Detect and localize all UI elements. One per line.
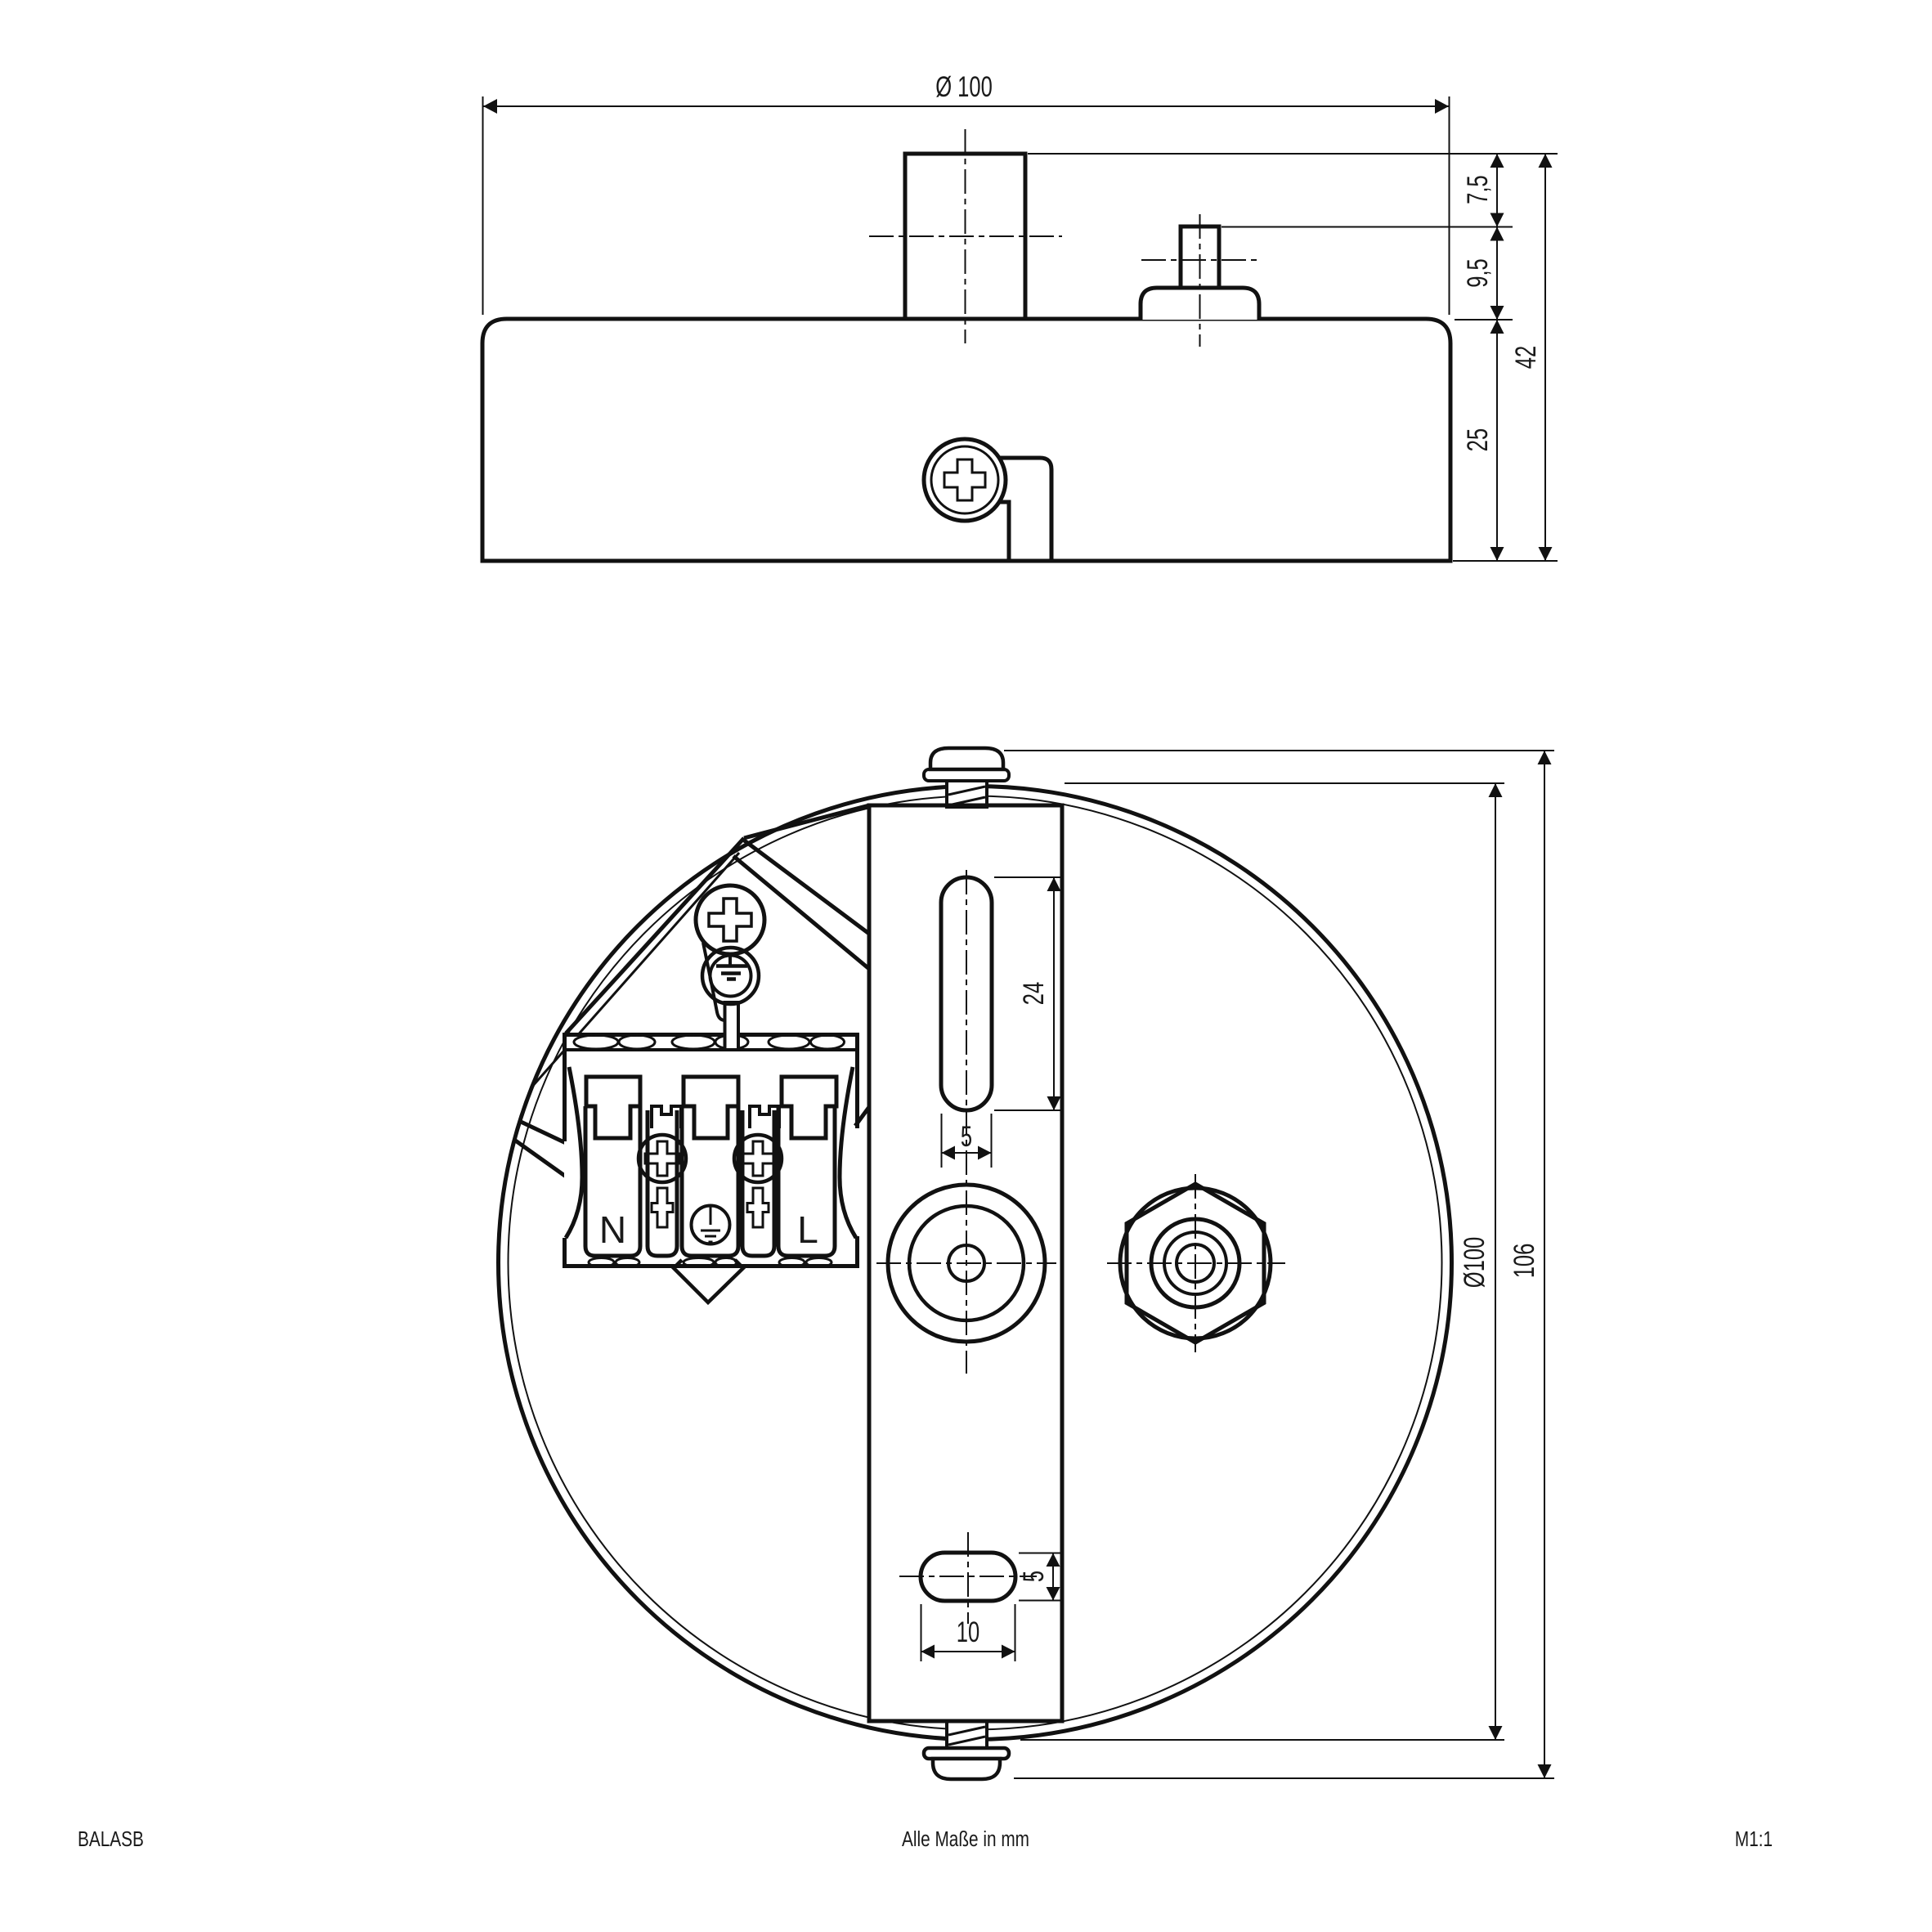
svg-text:9,5: 9,5 [1462,258,1494,288]
svg-text:Alle Maße in mm: Alle Maße in mm [902,1827,1029,1851]
svg-text:42: 42 [1510,346,1542,369]
svg-text:106: 106 [1508,1244,1540,1279]
svg-text:24: 24 [1018,982,1050,1005]
svg-text:5: 5 [1018,1571,1050,1582]
svg-text:N: N [599,1208,626,1251]
svg-text:25: 25 [1462,428,1494,451]
svg-text:L: L [797,1208,818,1251]
svg-text:Ø100: Ø100 [1459,1237,1490,1288]
svg-text:Ø 100: Ø 100 [935,71,993,103]
svg-text:BALASB: BALASB [78,1827,144,1851]
svg-text:10: 10 [957,1616,979,1648]
svg-text:5: 5 [961,1121,972,1153]
svg-text:M1:1: M1:1 [1735,1827,1773,1851]
svg-text:7,5: 7,5 [1462,175,1494,204]
